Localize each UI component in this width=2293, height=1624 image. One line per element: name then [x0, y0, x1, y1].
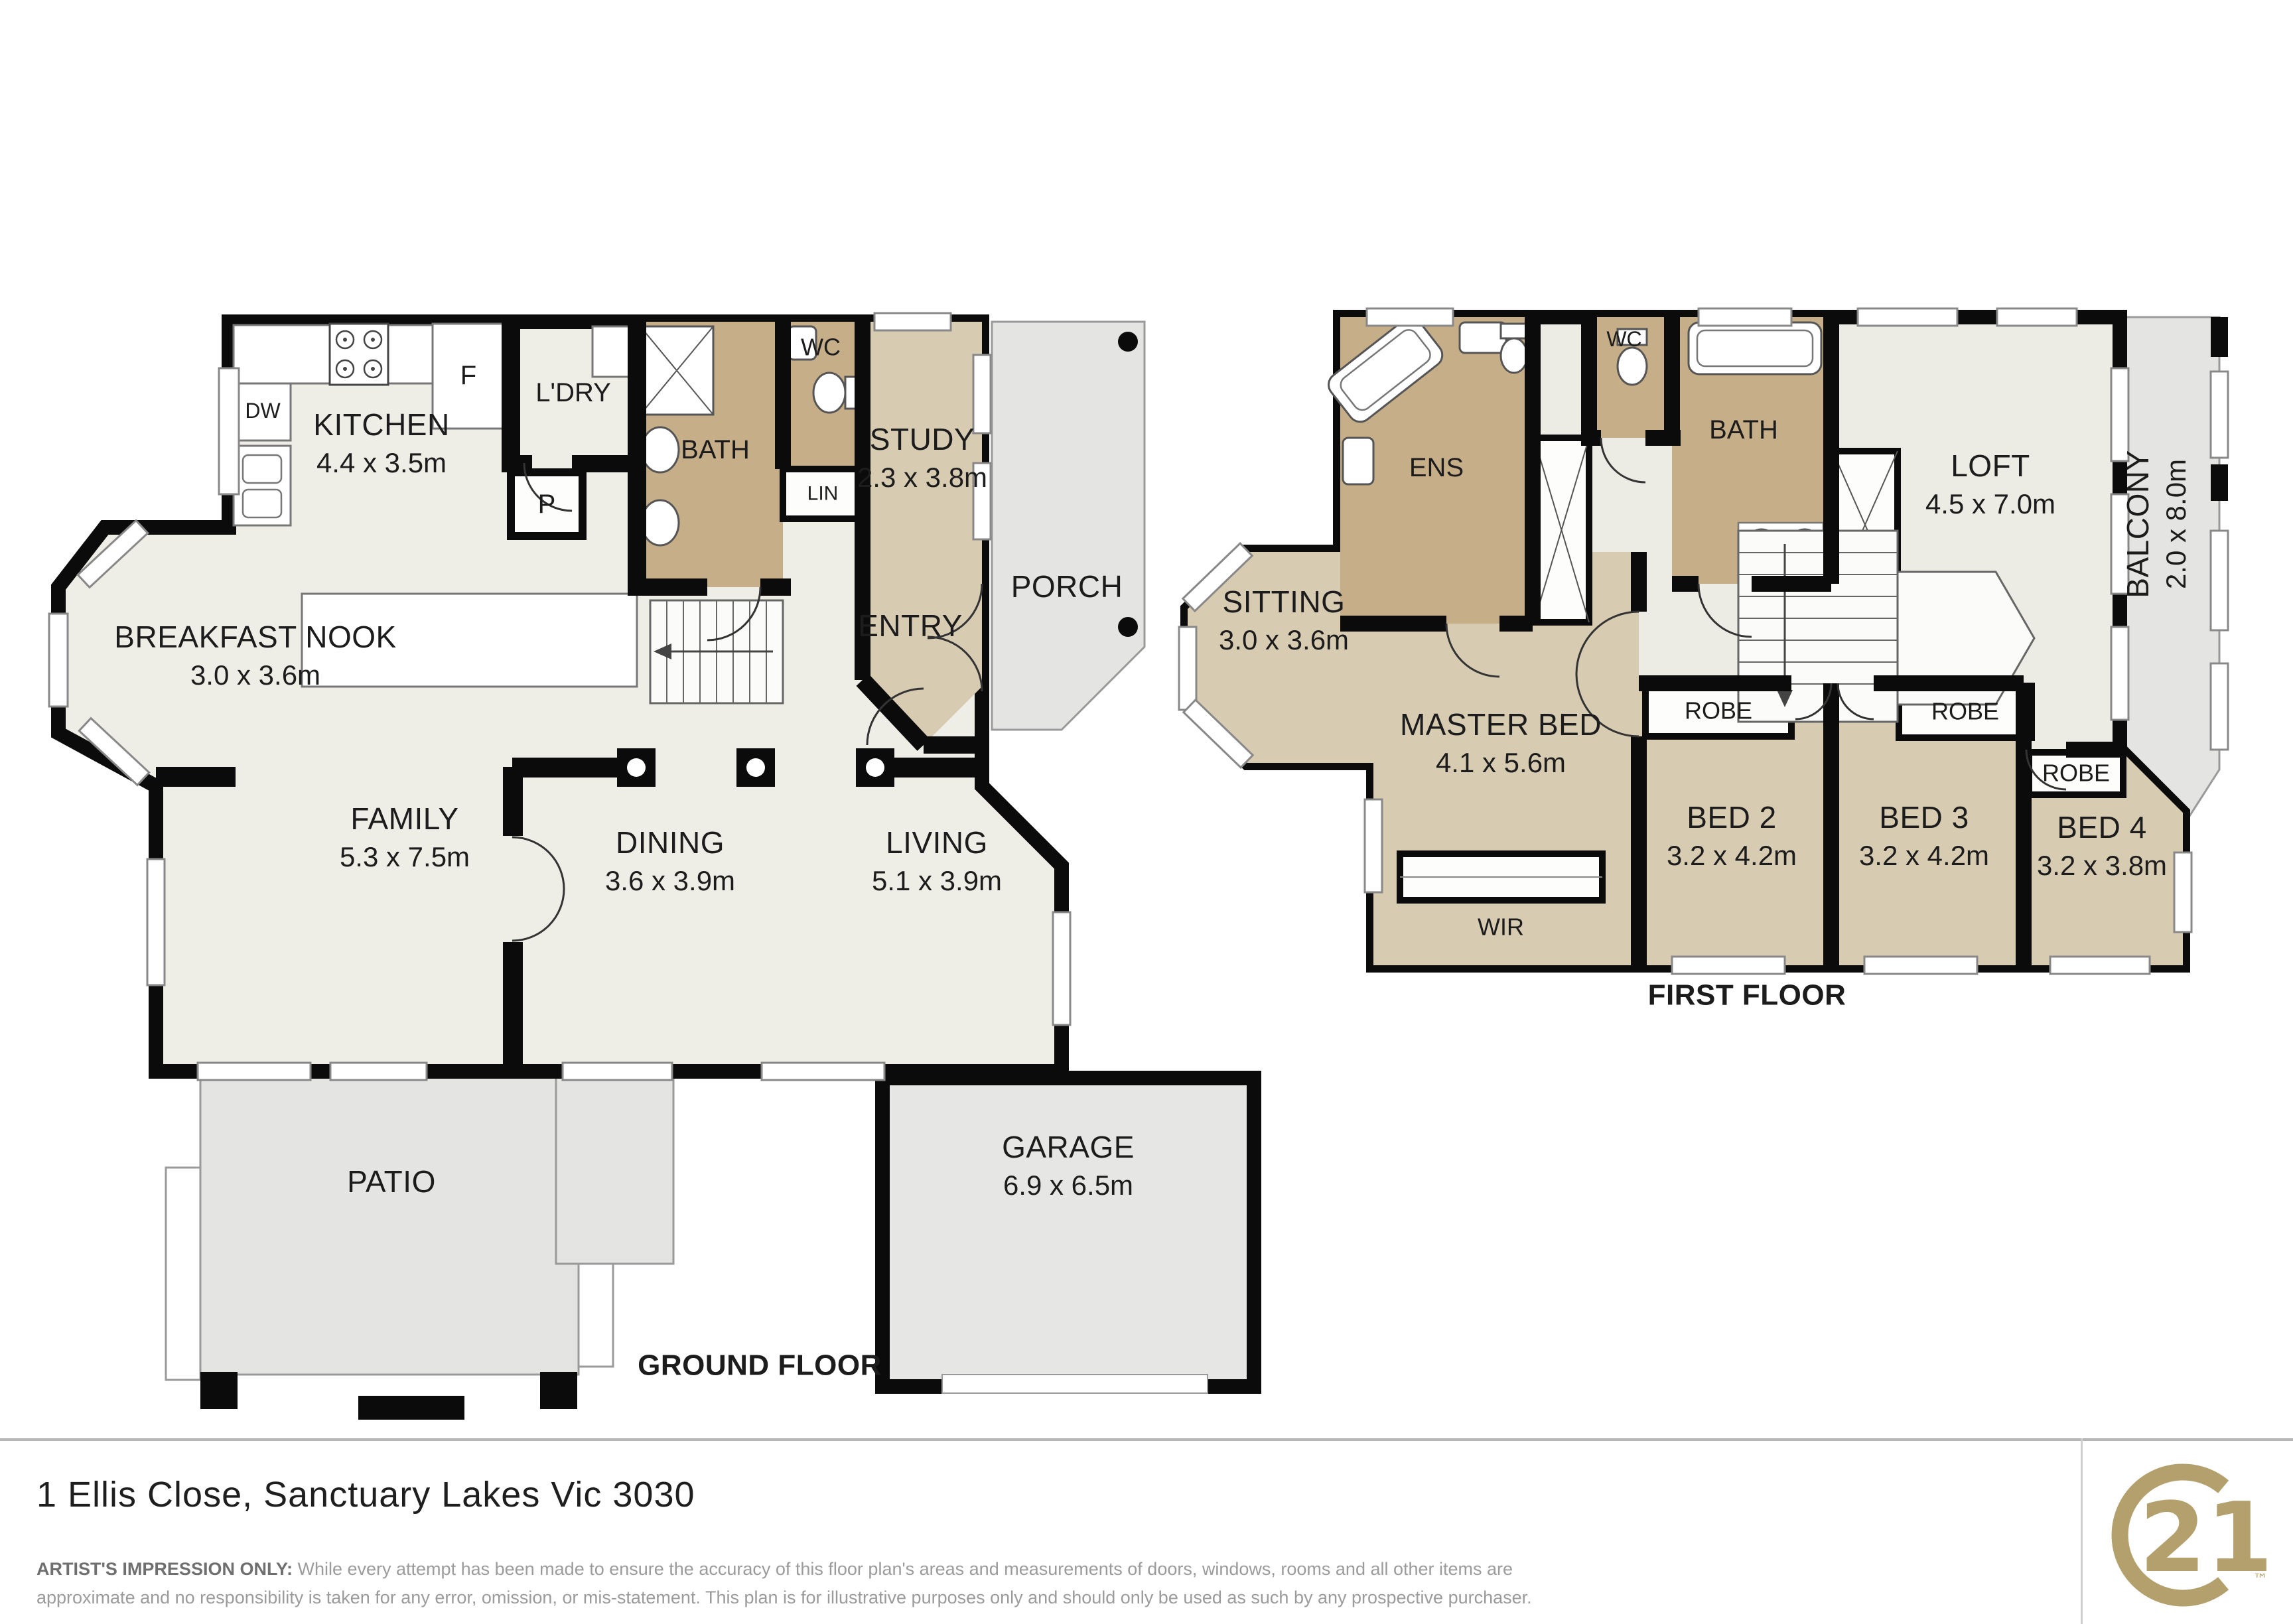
room-label-master-bed: MASTER BED 4.1 x 5.6m: [1400, 705, 1602, 781]
disclaimer-text: ARTIST'S IMPRESSION ONLY: While every at…: [36, 1555, 2014, 1612]
stairs-icon: [650, 600, 783, 703]
room-label-ground-bath: BATH: [681, 433, 750, 467]
room-label-loft: LOFT 4.5 x 7.0m: [1925, 446, 2055, 522]
footer-vertical-divider: [2081, 1438, 2083, 1624]
room-label-family: FAMILY 5.3 x 7.5m: [340, 799, 470, 875]
label-wir: WIR: [1478, 912, 1524, 943]
toilet-icon: [1501, 324, 1527, 373]
disclaimer-prefix: ARTIST'S IMPRESSION ONLY:: [36, 1559, 293, 1579]
room-label-breakfast-nook: BREAKFAST NOOK 3.0 x 3.6m: [114, 618, 396, 693]
shower-icon: [640, 326, 713, 415]
ground-floor-title: GROUND FLOOR: [638, 1346, 882, 1384]
floorplan-page: KITCHEN 4.4 x 3.5m F DW L'DRY P BATH WC …: [0, 0, 2293, 1624]
room-label-living: LIVING 5.1 x 3.9m: [872, 823, 1002, 899]
patio-area: [166, 1076, 613, 1420]
linen-cupboard: [1534, 438, 1589, 622]
porch-pillar: [1118, 332, 1138, 352]
room-label-first-bath: BATH: [1709, 413, 1778, 447]
room-label-entry: ENTRY: [858, 606, 963, 646]
room-label-sitting: SITTING 3.0 x 3.6m: [1219, 582, 1349, 658]
wir-closet: [1400, 854, 1602, 900]
disclaimer-line-2: approximate and no responsibility is tak…: [36, 1584, 2014, 1612]
room-label-patio: PATIO: [347, 1162, 436, 1202]
room-label-garage: GARAGE 6.9 x 6.5m: [1002, 1128, 1135, 1203]
label-robe-bed4: ROBE: [2042, 758, 2110, 789]
label-dishwasher: DW: [245, 397, 280, 425]
c21-trademark: ™: [2253, 1572, 2268, 1588]
room-label-bed3: BED 3 3.2 x 4.2m: [1859, 798, 1989, 874]
toilet-icon: [813, 373, 860, 413]
kitchen-sink-icon: [234, 446, 291, 525]
room-label-study: STUDY 2.3 x 3.8m: [857, 420, 987, 496]
study-room-floor: [863, 322, 982, 745]
garage-area: [882, 1078, 1254, 1393]
room-label-dining: DINING 3.6 x 3.9m: [605, 823, 735, 899]
room-label-ensuite: ENS: [1409, 450, 1464, 485]
property-address: 1 Ellis Close, Sanctuary Lakes Vic 3030: [36, 1474, 695, 1515]
footer-divider-line: [0, 1438, 2293, 1441]
c21-number: 21: [2139, 1482, 2272, 1594]
terrace-area: [556, 1076, 673, 1264]
room-label-porch: PORCH: [1011, 567, 1123, 607]
room-label-balcony: BALCONY 2.0 x 8.0m: [2119, 450, 2194, 598]
porch-area: [992, 322, 1145, 730]
room-label-ground-wc: WC: [801, 332, 841, 364]
label-fridge: F: [460, 358, 476, 393]
room-label-laundry: L'DRY: [535, 375, 611, 410]
label-pantry: P: [538, 487, 556, 521]
label-robe-bed2: ROBE: [1685, 696, 1752, 727]
porch-pillar: [1118, 617, 1138, 637]
room-label-bed4: BED 4 3.2 x 3.8m: [2037, 808, 2167, 884]
first-floor-title: FIRST FLOOR: [1648, 976, 1846, 1014]
sink-icon: [1343, 438, 1373, 484]
disclaimer-line-1: ARTIST'S IMPRESSION ONLY: While every at…: [36, 1555, 2014, 1584]
room-label-first-wc: WC: [1606, 326, 1641, 354]
sink-icon: [642, 427, 679, 472]
century21-logo: 21 ™: [2107, 1454, 2272, 1617]
bathtub-icon: [1689, 322, 1821, 374]
sink-icon: [642, 500, 679, 545]
stove-icon: [330, 324, 388, 385]
sink-icon: [1460, 322, 1506, 353]
room-label-bed2: BED 2 3.2 x 4.2m: [1667, 798, 1797, 874]
room-label-kitchen: KITCHEN 4.4 x 3.5m: [313, 405, 449, 481]
label-robe-bed3: ROBE: [1931, 697, 1999, 728]
label-linen: LIN: [807, 481, 839, 507]
